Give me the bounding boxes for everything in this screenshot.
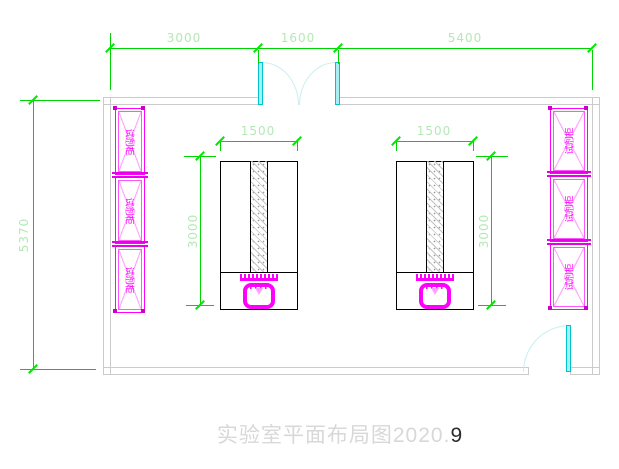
bench-left-reagent-shelf [250,161,268,273]
cabinet-cross-pattern: 试剂柜 [118,249,142,310]
door-bottom-leaf [566,325,571,372]
door-top-left-swing-arc [262,62,299,105]
drawing-title: 实验室平面布局图2020.9 [160,419,520,449]
bench-right-divider [396,272,474,273]
reagent-cabinet-left-3: 试剂柜 [115,246,145,313]
cabinet-label: 试剂柜 [124,128,137,155]
dim-extension [110,33,111,90]
dim-line-top [110,48,592,49]
dim-line-bench-left-width [220,141,298,142]
cabinet-label: 试剂柜 [124,266,137,293]
reagent-cabinet-right-3: 试剂柜 [550,244,588,310]
dim-extension [220,141,221,151]
dim-label-1500-left-bench: 1500 [228,124,288,138]
cabinet-cross-pattern: 试剂柜 [553,247,585,307]
dim-label-3000-left-bench: 3000 [186,201,200,261]
wall-bottom-left-segment [103,367,529,375]
cabinet-label: 试剂柜 [563,263,576,290]
dim-label-3000-right-bench: 3000 [477,201,491,261]
reagent-cabinet-left-2: 试剂柜 [115,177,145,244]
cabinet-divider [547,239,591,245]
reagent-cabinet-right-1: 试剂柜 [550,108,588,174]
cabinet-corner-mark [548,306,552,310]
dim-label-3000-top: 3000 [154,31,214,45]
door-top-left-leaf [258,62,263,105]
cabinet-label: 试剂柜 [563,127,576,154]
dim-extension [338,50,339,64]
bench-left-divider [220,272,298,273]
dim-line-bench-right-depth [491,156,492,305]
reagent-cabinet-right-2: 试剂柜 [550,176,588,242]
sink-grill-right [416,274,454,281]
dim-line-bench-left-depth [200,156,201,305]
dim-label-5370-left: 5370 [17,205,31,265]
cabinet-corner-mark [584,106,588,110]
dim-label-1600-top: 1600 [268,31,328,45]
cabinet-corner-mark [141,309,145,313]
cabinet-corner-mark [141,106,145,110]
drawing-title-text: 实验室平面布局图2020. [217,424,451,447]
cabinet-cross-pattern: 试剂柜 [553,179,585,239]
dim-extension [396,141,397,151]
cabinet-label: 试剂柜 [124,197,137,224]
cabinet-corner-mark [548,106,552,110]
reagent-cabinet-left-1: 试剂柜 [115,108,145,175]
bench-right-reagent-shelf [426,161,444,273]
wall-right [592,97,600,375]
cabinet-divider [112,172,148,178]
dim-line-left [33,100,34,369]
door-top-right-leaf [335,62,340,105]
cabinet-cross-pattern: 试剂柜 [118,111,142,172]
cabinet-divider [112,241,148,247]
door-top-right-swing-arc [299,62,336,105]
dim-extension [473,141,474,151]
cabinet-divider [547,171,591,177]
door-bottom-swing-arc [523,325,570,372]
dim-extension [297,141,298,151]
cabinet-cross-pattern: 试剂柜 [118,180,142,241]
dim-label-1500-right-bench: 1500 [404,124,464,138]
cabinet-label: 试剂柜 [563,195,576,222]
cabinet-corner-mark [113,106,117,110]
cabinet-cross-pattern: 试剂柜 [553,111,585,171]
cabinet-corner-mark [113,309,117,313]
floorplan-canvas: 试剂柜 试剂柜 试剂柜 试剂柜 试剂柜 试剂柜 [0,0,619,469]
wall-top-left-segment [103,97,259,105]
wall-top-right-segment [338,97,600,105]
dim-extension [592,50,593,90]
wall-left [103,97,111,375]
drawing-title-year-digit: 9 [450,424,463,447]
cabinet-corner-mark [584,306,588,310]
dim-extension [258,50,259,64]
dim-line-bench-right-width [396,141,474,142]
sink-grill-left [240,274,278,281]
dim-label-5400-top: 5400 [435,31,495,45]
